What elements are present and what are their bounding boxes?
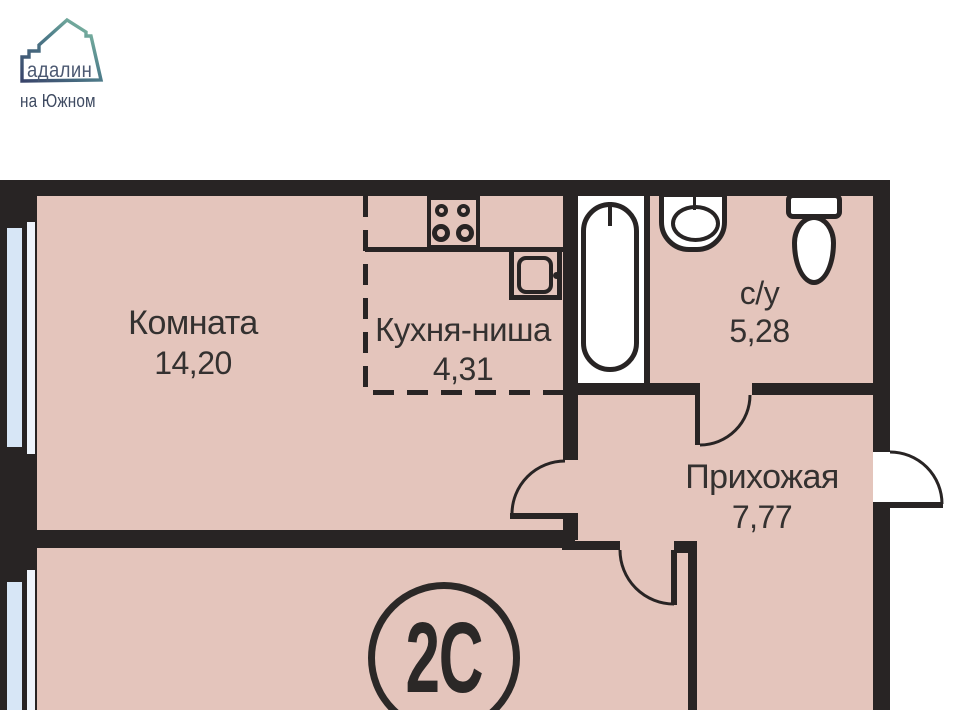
wall-right: [873, 180, 890, 710]
door-swing-icon: [890, 452, 942, 504]
room-label-hallway: Прихожая 7,77: [662, 457, 862, 536]
wall-bottom-vertical: [688, 541, 697, 710]
wall-door-cap: [674, 541, 697, 553]
room-label-kitchen: Кухня-ниша 4,31: [363, 310, 563, 388]
wall-bath-south-right: [752, 383, 873, 395]
wall-tub-partition: [644, 196, 650, 395]
room-area: 4,31: [363, 350, 563, 388]
room-label-komnata: Комната 14,20: [58, 303, 328, 382]
room-name: Прихожая: [662, 457, 862, 498]
entrance-opening: [873, 452, 890, 505]
wall-top: [0, 180, 890, 196]
stove-burner-icon: [457, 204, 470, 217]
room-area: 7,77: [662, 498, 862, 536]
door-leaf-bottom-room: [671, 550, 677, 605]
bath-sink-tap-icon: [693, 196, 696, 210]
room-label-bathroom: с/у 5,28: [692, 274, 827, 351]
bathtub-tap-icon: [608, 202, 612, 226]
room-name: с/у: [692, 274, 827, 312]
wall-door-jamb: [563, 513, 578, 540]
wall-hall-step: [562, 541, 620, 550]
window-icon: [27, 570, 35, 710]
room-area: 5,28: [692, 312, 827, 350]
wall-bath-south-left: [578, 383, 700, 395]
wall-kitchen-east: [563, 196, 578, 460]
room-name: Кухня-ниша: [363, 310, 563, 350]
bathtub-icon: [581, 202, 639, 372]
window-icon: [27, 222, 35, 454]
kitchen-sink-bowl-icon: [517, 256, 553, 294]
window-icon: [7, 582, 22, 710]
wall-room-south: [0, 530, 575, 548]
floorplan-canvas: адалин на Южном: [0, 0, 960, 710]
stove-burner-icon: [435, 204, 448, 217]
logo: адалин на Южном: [14, 12, 134, 122]
door-leaf-entrance: [873, 502, 943, 508]
room-area: 14,20: [58, 344, 328, 382]
unit-badge-label: 2С: [406, 601, 483, 710]
window-icon: [7, 228, 22, 447]
door-leaf-bathroom: [695, 395, 700, 445]
stove-icon: [427, 196, 480, 249]
door-leaf-room: [510, 513, 565, 519]
stove-burner-icon: [456, 224, 474, 242]
logo-brand: адалин: [27, 59, 94, 83]
bath-sink-bowl-icon: [671, 205, 720, 242]
stove-burner-icon: [432, 224, 450, 242]
kitchen-sink-tap-icon: [553, 272, 560, 279]
logo-subtitle: на Южном: [20, 91, 96, 112]
room-name: Комната: [58, 303, 328, 344]
